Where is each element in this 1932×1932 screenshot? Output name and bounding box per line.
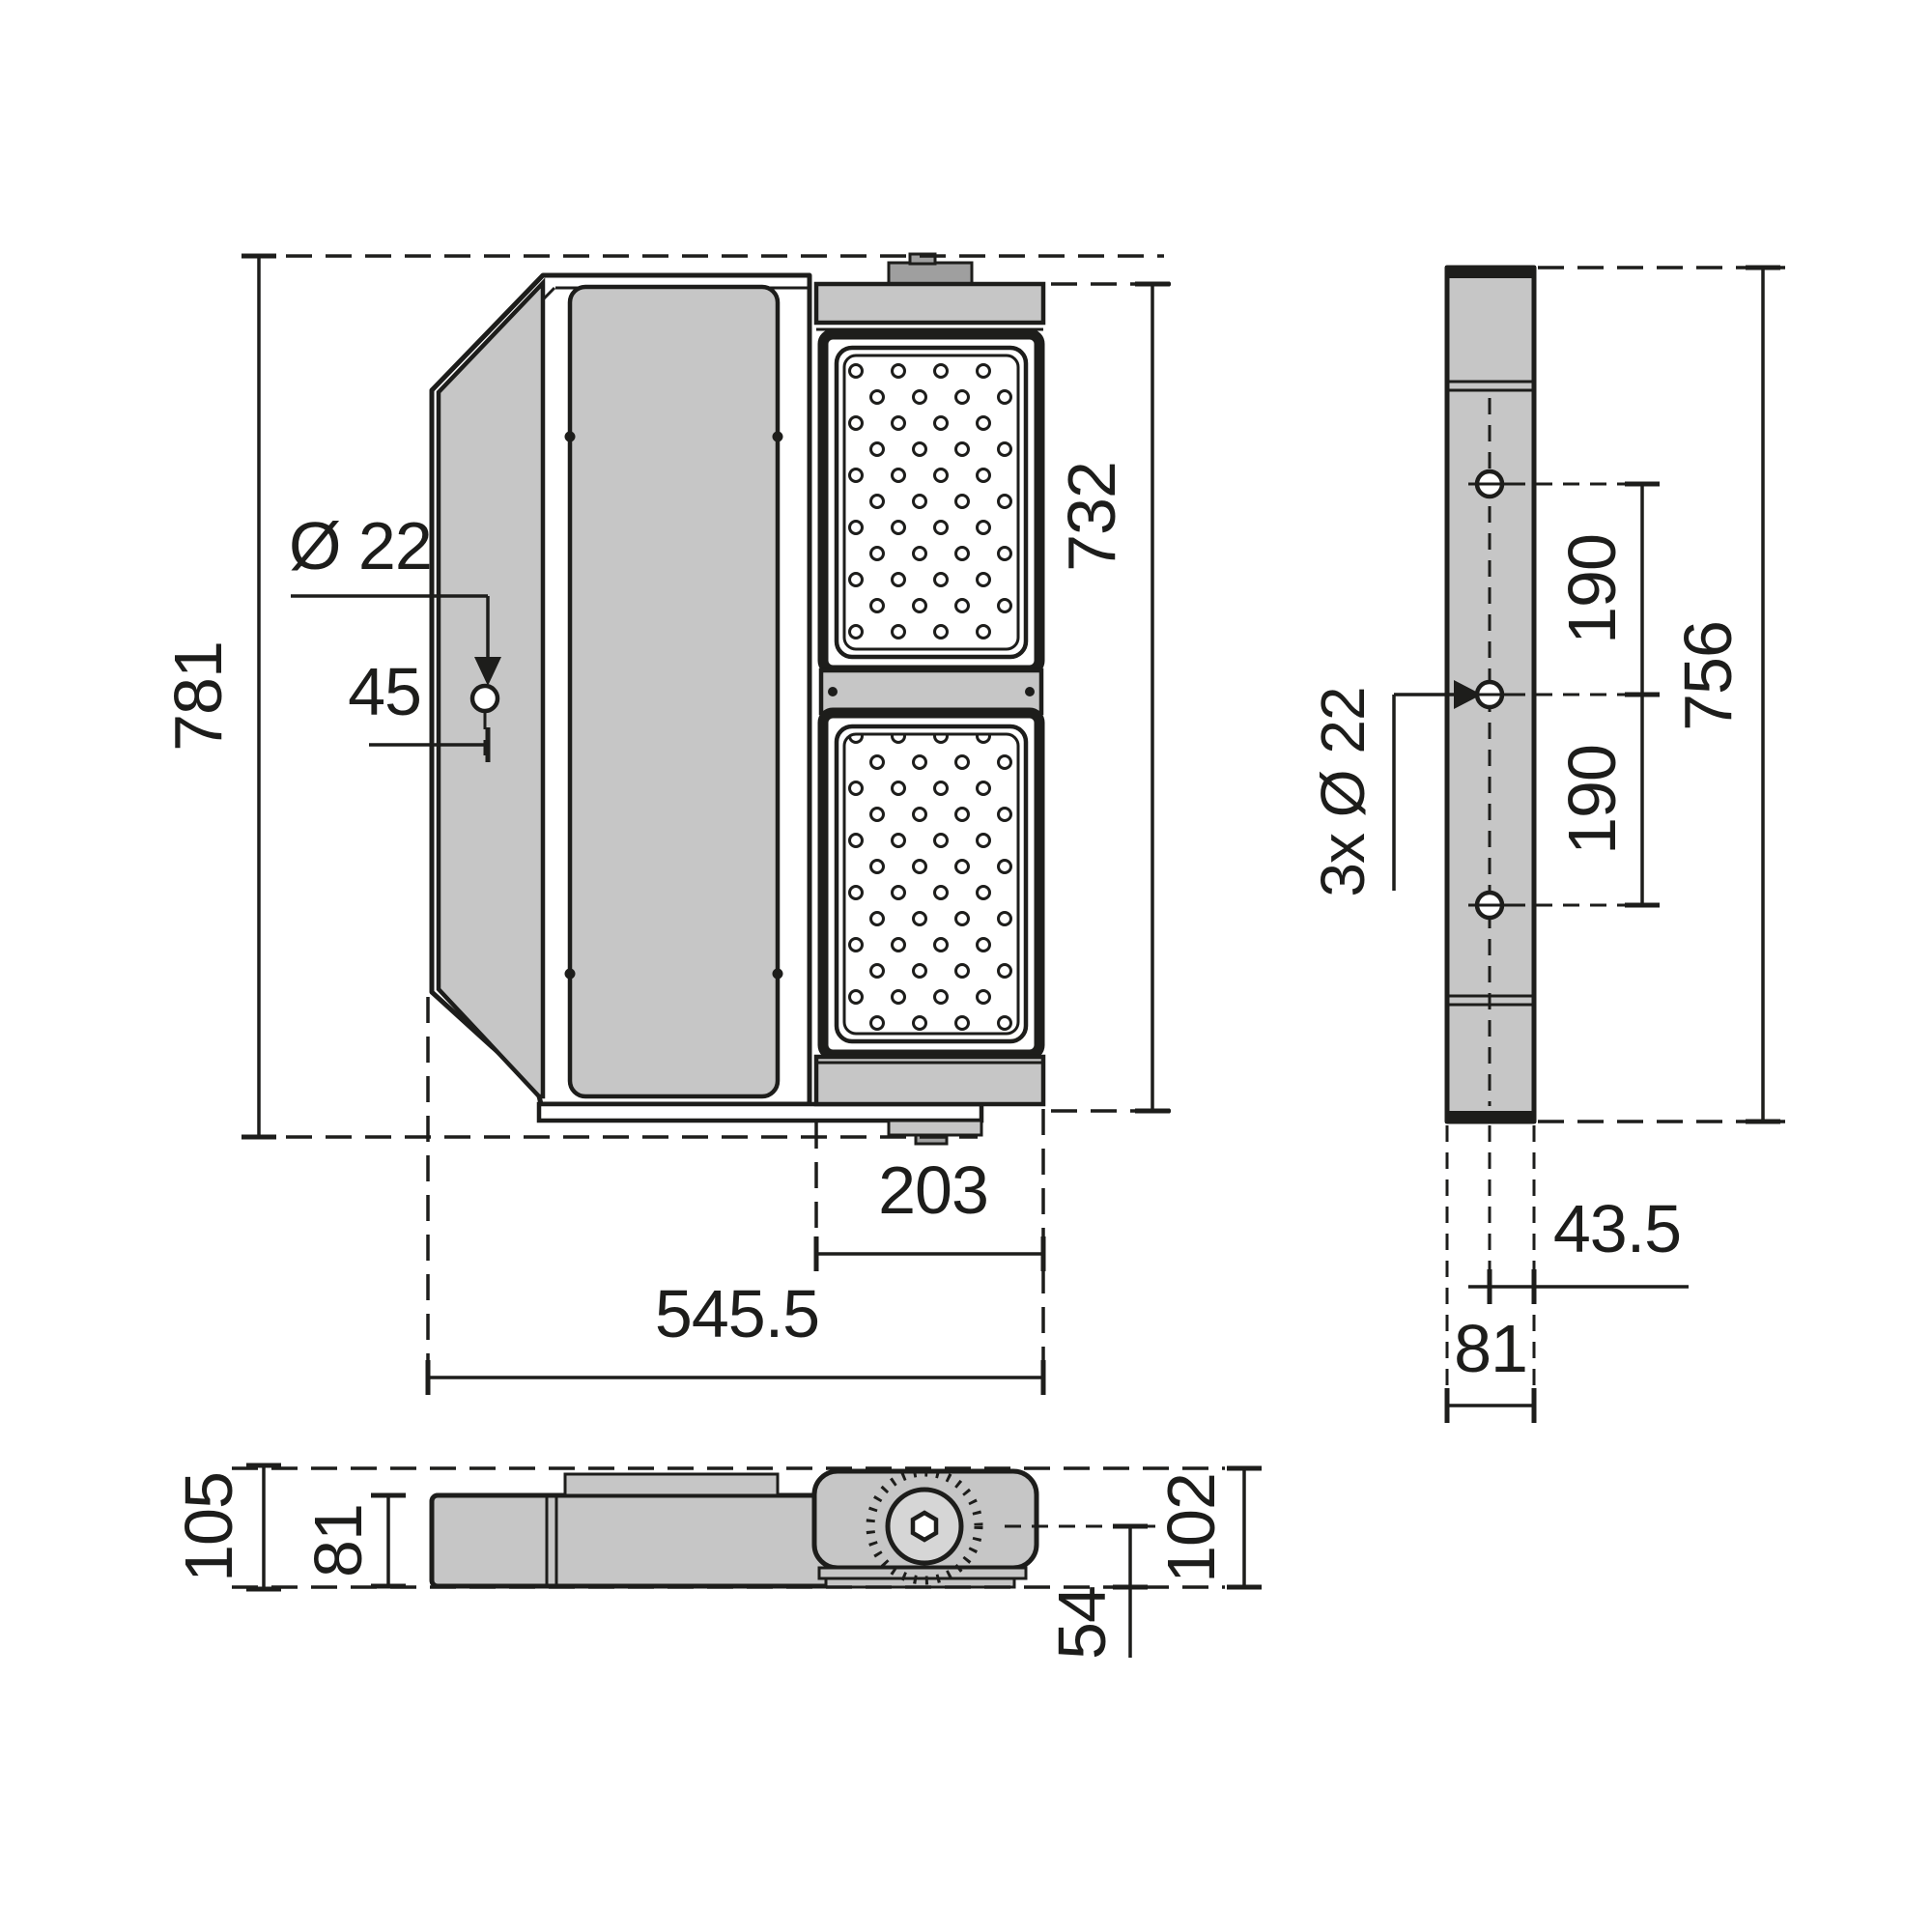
foot-plate [539, 1104, 981, 1121]
dim-label-81-top: 81 [300, 1504, 376, 1577]
dim-label-203: 203 [878, 1152, 988, 1228]
top-foot-tab [565, 1474, 778, 1495]
dim-label-81-side: 81 [1454, 1311, 1527, 1386]
side-view: 3x Ø 22 190 190 756 [1308, 266, 1785, 1423]
panel-screw-dot [773, 969, 783, 980]
led-module-1-dot-grid [844, 355, 1018, 649]
dim-label-105: 105 [171, 1472, 246, 1582]
bracket-bottom-cap [1445, 1111, 1536, 1123]
top-housing-arm [432, 1495, 842, 1586]
dim-label-45: 45 [348, 654, 421, 729]
joint-screw-dot [1025, 687, 1035, 696]
dim-head-depth: 102 [1153, 1468, 1262, 1587]
panel-screw-dot [565, 969, 576, 980]
dim-label-102: 102 [1153, 1473, 1229, 1583]
led-top-bracket-bar [816, 284, 1043, 323]
dim-label-190-upper: 190 [1554, 534, 1630, 644]
dim-label-756: 756 [1670, 621, 1746, 731]
panel-screw-dot [565, 432, 576, 442]
dim-label-732: 732 [1054, 462, 1129, 572]
floodlight-dimension-drawing: 781 732 545.5 203 [0, 0, 1932, 1932]
technical-drawing-page: 781 732 545.5 203 [0, 0, 1932, 1932]
led-module-joint [821, 670, 1041, 713]
front-view: 781 732 545.5 203 [160, 254, 1171, 1395]
dim-label-54: 54 [1044, 1586, 1120, 1660]
foot-bracket-tab [889, 1121, 981, 1135]
led-module-2-dot-grid [844, 734, 1018, 1034]
bracket-top-cap [1445, 266, 1536, 278]
dim-label-3x-d22: 3x Ø 22 [1308, 687, 1378, 896]
dim-led-section-height: 732 [1051, 284, 1171, 1111]
panel-screw-dot [773, 432, 783, 442]
dim-label-43-5: 43.5 [1553, 1191, 1681, 1266]
top-bracket-plate [819, 1568, 1026, 1578]
dim-label-545-5: 545.5 [655, 1276, 819, 1351]
top-view: 105 81 102 54 [171, 1465, 1262, 1660]
top-cable-gland [889, 263, 972, 284]
joint-screw-dot [828, 687, 838, 696]
dim-label-781: 781 [160, 641, 236, 752]
hinge-hex-socket [913, 1513, 936, 1540]
dim-label-190-lower: 190 [1554, 745, 1630, 855]
mounting-hole [472, 686, 497, 711]
dim-label-hole-diameter: Ø 22 [289, 508, 432, 583]
housing-center-panel [570, 287, 778, 1096]
top-housing-profile [432, 1471, 1037, 1587]
dim-housing-depth: 81 [300, 1495, 406, 1586]
dim-overall-depth: 105 [171, 1465, 281, 1589]
front-led-assembly [816, 254, 1043, 1104]
